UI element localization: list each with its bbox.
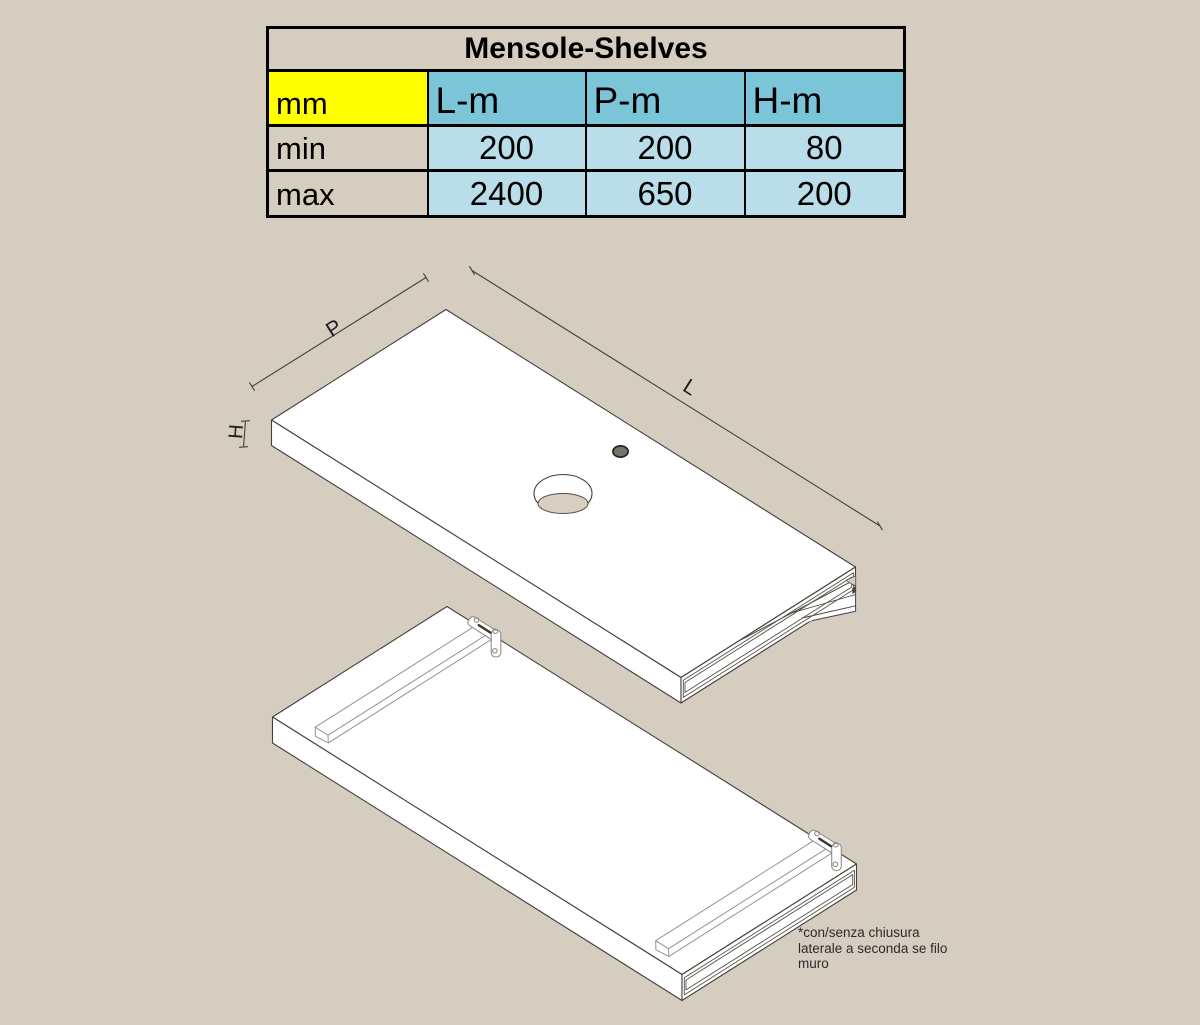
svg-text:P: P [322,315,346,342]
svg-text:H: H [225,424,248,440]
svg-text:L: L [679,375,701,401]
